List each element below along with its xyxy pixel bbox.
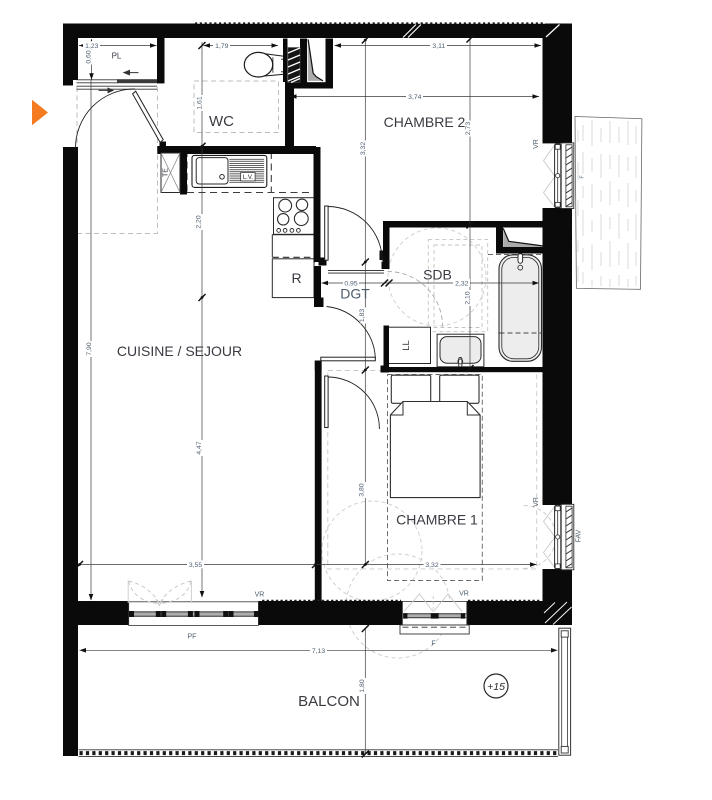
svg-text:1,80: 1,80 xyxy=(359,679,366,692)
svg-text:4,47: 4,47 xyxy=(196,441,203,454)
svg-text:2,20: 2,20 xyxy=(195,215,202,228)
svg-text:3,32: 3,32 xyxy=(425,562,438,569)
svg-text:CHAMBRE 2: CHAMBRE 2 xyxy=(384,114,466,130)
svg-text:VR: VR xyxy=(459,591,469,598)
svg-text:TE: TE xyxy=(163,168,170,177)
svg-text:BALCON: BALCON xyxy=(298,693,360,710)
svg-text:1,79: 1,79 xyxy=(215,43,228,50)
svg-text:3,32: 3,32 xyxy=(360,142,367,155)
svg-text:PL: PL xyxy=(112,52,122,61)
svg-text:VR: VR xyxy=(255,592,265,599)
svg-text:R: R xyxy=(292,270,302,286)
svg-text:FAV: FAV xyxy=(576,529,583,542)
svg-text:2,10: 2,10 xyxy=(464,291,471,304)
svg-text:CHAMBRE 1: CHAMBRE 1 xyxy=(396,512,478,528)
svg-text:DGT: DGT xyxy=(340,286,370,302)
svg-text:1,83: 1,83 xyxy=(359,309,366,322)
svg-text:PF: PF xyxy=(188,634,197,641)
svg-text:SDB: SDB xyxy=(423,267,452,283)
svg-text:3,80: 3,80 xyxy=(359,483,366,496)
svg-text:VR: VR xyxy=(533,139,540,149)
svg-text:F: F xyxy=(580,175,586,178)
svg-text:3,55: 3,55 xyxy=(189,562,202,569)
svg-text:2,73: 2,73 xyxy=(465,122,472,135)
svg-text:1,61: 1,61 xyxy=(197,96,204,109)
svg-text:L.V.: L.V. xyxy=(243,175,253,181)
svg-text:1,23: 1,23 xyxy=(85,43,98,50)
svg-text:0,60: 0,60 xyxy=(85,50,92,63)
svg-text:7,13: 7,13 xyxy=(312,648,325,655)
svg-text:LL: LL xyxy=(401,340,412,351)
svg-text:3,74: 3,74 xyxy=(408,94,421,101)
svg-text:7,90: 7,90 xyxy=(86,342,93,355)
svg-text:2,32: 2,32 xyxy=(455,281,468,288)
svg-text:3,11: 3,11 xyxy=(432,43,445,50)
svg-text:F: F xyxy=(431,641,435,648)
svg-text:CUISINE / SEJOUR: CUISINE / SEJOUR xyxy=(117,343,242,359)
svg-text:VR: VR xyxy=(533,497,540,507)
svg-text:WC: WC xyxy=(209,113,234,130)
svg-text:+15: +15 xyxy=(487,681,505,693)
